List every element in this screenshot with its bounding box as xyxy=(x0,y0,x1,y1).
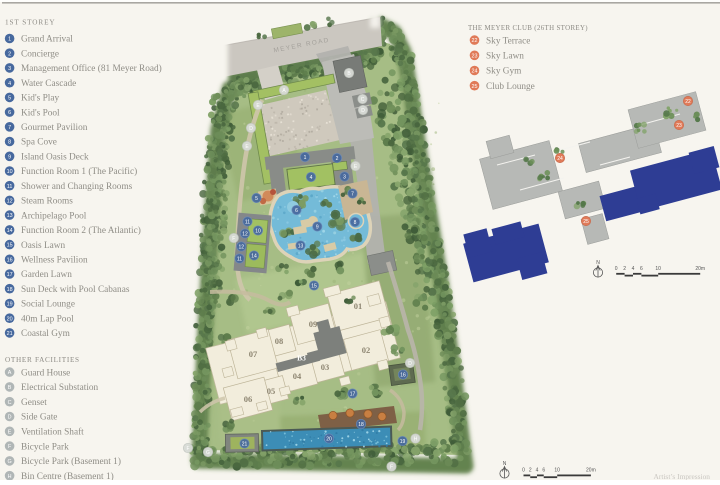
svg-text:OTHER FACILITIES: OTHER FACILITIES xyxy=(5,356,80,364)
svg-text:D: D xyxy=(249,126,253,132)
svg-text:16: 16 xyxy=(7,257,13,263)
svg-text:16: 16 xyxy=(400,373,406,379)
svg-text:G: G xyxy=(7,459,11,465)
svg-text:13: 13 xyxy=(7,213,13,219)
svg-text:Club Lounge: Club Lounge xyxy=(486,82,535,92)
svg-text:4: 4 xyxy=(536,467,539,473)
svg-text:6: 6 xyxy=(542,467,545,473)
svg-text:14: 14 xyxy=(251,254,257,260)
svg-text:Kid's Pool: Kid's Pool xyxy=(21,108,60,118)
svg-text:D: D xyxy=(408,361,412,367)
svg-text:40m Lap Pool: 40m Lap Pool xyxy=(21,314,74,324)
svg-text:Oasis Lawn: Oasis Lawn xyxy=(21,241,66,251)
svg-text:F: F xyxy=(232,236,235,242)
svg-text:Function Room 1 (The Pacific): Function Room 1 (The Pacific) xyxy=(21,166,137,177)
svg-text:Sun Deck with Pool Cabanas: Sun Deck with Pool Cabanas xyxy=(21,285,130,295)
svg-text:1: 1 xyxy=(8,37,11,43)
svg-text:21: 21 xyxy=(7,331,13,337)
svg-text:Bicycle Park (Basement 1): Bicycle Park (Basement 1) xyxy=(21,456,121,467)
svg-text:17: 17 xyxy=(7,272,13,278)
svg-text:Concierge: Concierge xyxy=(21,49,59,59)
svg-text:H: H xyxy=(8,474,12,480)
svg-text:A: A xyxy=(8,370,12,376)
svg-text:5: 5 xyxy=(8,96,11,102)
svg-text:Sky Gym: Sky Gym xyxy=(486,67,522,77)
svg-text:Guard House: Guard House xyxy=(21,368,70,378)
svg-text:Steam Rooms: Steam Rooms xyxy=(21,197,73,207)
svg-text:Sky Terrace: Sky Terrace xyxy=(486,36,530,46)
svg-text:Genset: Genset xyxy=(21,398,47,408)
svg-text:13: 13 xyxy=(298,244,304,250)
svg-text:C: C xyxy=(361,97,365,103)
svg-text:4: 4 xyxy=(310,175,313,181)
svg-text:25: 25 xyxy=(583,219,589,225)
svg-text:10: 10 xyxy=(7,169,13,175)
svg-text:9: 9 xyxy=(316,225,319,231)
svg-text:D: D xyxy=(8,415,12,421)
svg-text:Shower and Changing Rooms: Shower and Changing Rooms xyxy=(21,182,133,192)
svg-text:6: 6 xyxy=(295,208,298,214)
svg-text:5: 5 xyxy=(255,196,258,202)
svg-text:06: 06 xyxy=(244,394,253,404)
svg-text:0: 0 xyxy=(522,467,525,473)
svg-text:Wellness Pavilion: Wellness Pavilion xyxy=(21,256,88,266)
svg-text:0: 0 xyxy=(615,266,618,272)
svg-text:12: 12 xyxy=(239,245,245,251)
svg-text:15: 15 xyxy=(7,243,13,249)
svg-text:20: 20 xyxy=(326,437,332,443)
svg-text:2: 2 xyxy=(623,266,626,272)
svg-text:B: B xyxy=(8,385,12,391)
svg-text:12: 12 xyxy=(242,232,248,238)
svg-text:12: 12 xyxy=(7,199,13,205)
svg-text:10: 10 xyxy=(255,229,261,235)
svg-text:15: 15 xyxy=(311,284,317,290)
svg-text:G: G xyxy=(206,450,210,456)
svg-text:THE MEYER CLUB (26TH STOREY): THE MEYER CLUB (26TH STOREY) xyxy=(468,25,588,32)
svg-text:05: 05 xyxy=(267,386,276,396)
svg-text:11: 11 xyxy=(237,257,242,263)
svg-text:18: 18 xyxy=(7,287,13,293)
svg-text:20: 20 xyxy=(7,316,13,322)
svg-text:3: 3 xyxy=(8,66,11,72)
svg-text:7: 7 xyxy=(351,192,354,198)
svg-text:08: 08 xyxy=(275,336,284,346)
svg-text:4: 4 xyxy=(8,81,11,87)
svg-text:07: 07 xyxy=(249,349,258,359)
svg-text:Kid's Play: Kid's Play xyxy=(21,94,59,104)
svg-text:18: 18 xyxy=(358,422,364,428)
svg-text:Gourmet Pavilion: Gourmet Pavilion xyxy=(21,123,88,133)
svg-text:Sky Lawn: Sky Lawn xyxy=(486,52,524,62)
svg-text:Social Lounge: Social Lounge xyxy=(21,300,75,310)
svg-text:Coastal Gym: Coastal Gym xyxy=(21,329,71,339)
svg-text:Management Office (81 Meyer Ro: Management Office (81 Meyer Road) xyxy=(21,63,162,74)
svg-text:Island Oasis Deck: Island Oasis Deck xyxy=(21,153,89,163)
svg-text:2: 2 xyxy=(8,51,11,57)
svg-text:19: 19 xyxy=(400,439,406,445)
svg-text:14: 14 xyxy=(7,228,13,234)
svg-text:24: 24 xyxy=(472,69,478,75)
svg-text:03: 03 xyxy=(321,362,330,372)
svg-text:Water Cascade: Water Cascade xyxy=(21,79,76,89)
svg-text:H: H xyxy=(414,437,418,443)
svg-text:01: 01 xyxy=(354,301,363,311)
svg-text:9: 9 xyxy=(8,154,11,160)
svg-text:F: F xyxy=(186,446,189,452)
svg-text:17: 17 xyxy=(350,392,356,398)
svg-text:3: 3 xyxy=(343,175,346,181)
svg-text:02: 02 xyxy=(362,345,371,355)
svg-text:E: E xyxy=(8,429,12,435)
svg-text:Side Gate: Side Gate xyxy=(21,413,57,423)
svg-text:Bicycle Park: Bicycle Park xyxy=(21,442,69,452)
svg-text:Garden Lawn: Garden Lawn xyxy=(21,270,72,280)
svg-text:Electrical Substation: Electrical Substation xyxy=(21,383,99,393)
svg-text:Artist’s Impression: Artist’s Impression xyxy=(654,472,711,480)
svg-text:20m: 20m xyxy=(586,467,596,473)
svg-text:Spa Cove: Spa Cove xyxy=(21,138,57,148)
svg-text:22: 22 xyxy=(685,99,691,105)
svg-text:24: 24 xyxy=(557,156,563,162)
svg-text:04: 04 xyxy=(293,371,302,381)
svg-text:Archipelago Pool: Archipelago Pool xyxy=(21,211,87,221)
svg-text:10: 10 xyxy=(655,266,661,272)
svg-text:22: 22 xyxy=(472,38,478,44)
svg-text:20m: 20m xyxy=(695,266,705,272)
svg-text:7: 7 xyxy=(8,125,11,131)
svg-text:09: 09 xyxy=(309,319,318,329)
svg-text:23: 23 xyxy=(472,53,478,59)
svg-text:F: F xyxy=(390,465,393,471)
svg-text:1: 1 xyxy=(304,155,307,161)
svg-text:Grand Arrival: Grand Arrival xyxy=(21,35,73,45)
svg-text:2: 2 xyxy=(529,467,532,473)
svg-text:4: 4 xyxy=(632,266,635,272)
svg-text:11: 11 xyxy=(245,220,250,226)
svg-text:25: 25 xyxy=(472,84,478,90)
svg-text:D: D xyxy=(361,108,365,114)
svg-text:6: 6 xyxy=(640,266,643,272)
svg-text:19: 19 xyxy=(7,302,13,308)
svg-text:2: 2 xyxy=(336,156,339,162)
svg-text:21: 21 xyxy=(242,442,248,448)
svg-text:6: 6 xyxy=(8,110,11,116)
svg-text:C: C xyxy=(8,400,12,406)
svg-text:8: 8 xyxy=(354,220,357,226)
svg-text:Ventilation Shaft: Ventilation Shaft xyxy=(21,427,84,438)
svg-text:1ST STOREY: 1ST STOREY xyxy=(5,19,55,27)
svg-text:Bin Centre (Basement 1): Bin Centre (Basement 1) xyxy=(21,471,114,480)
svg-text:Function Room 2 (The Atlantic): Function Room 2 (The Atlantic) xyxy=(21,225,141,236)
svg-text:23: 23 xyxy=(676,123,682,129)
svg-text:10: 10 xyxy=(554,467,560,473)
svg-text:B3: B3 xyxy=(297,354,306,363)
svg-text:8: 8 xyxy=(8,140,11,146)
svg-text:11: 11 xyxy=(7,184,13,190)
